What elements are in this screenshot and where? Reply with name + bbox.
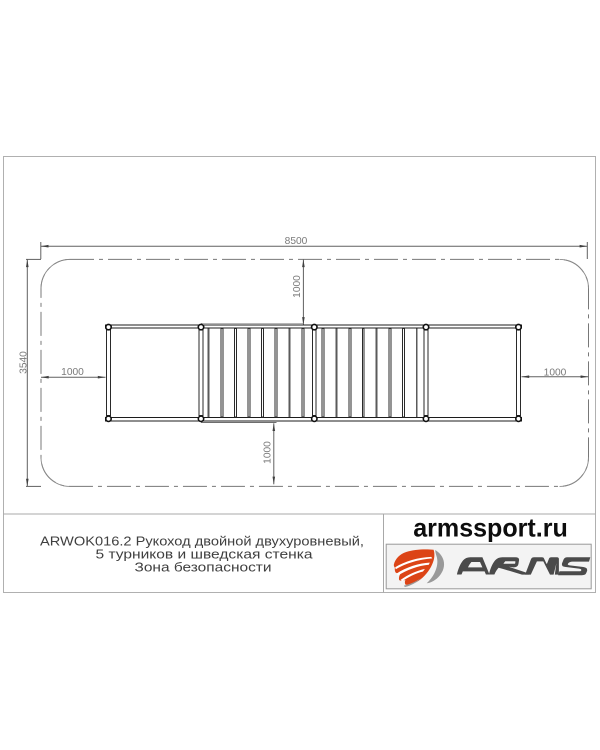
svg-text:8500: 8500 [285,236,308,247]
svg-text:1000: 1000 [61,367,84,378]
svg-text:Зона безопасности: Зона безопасности [135,560,272,575]
svg-text:1000: 1000 [263,441,274,464]
svg-text:3540: 3540 [18,351,29,374]
svg-text:1000: 1000 [292,275,303,298]
svg-text:armssport.ru: armssport.ru [413,513,568,543]
svg-text:1000: 1000 [544,367,567,378]
